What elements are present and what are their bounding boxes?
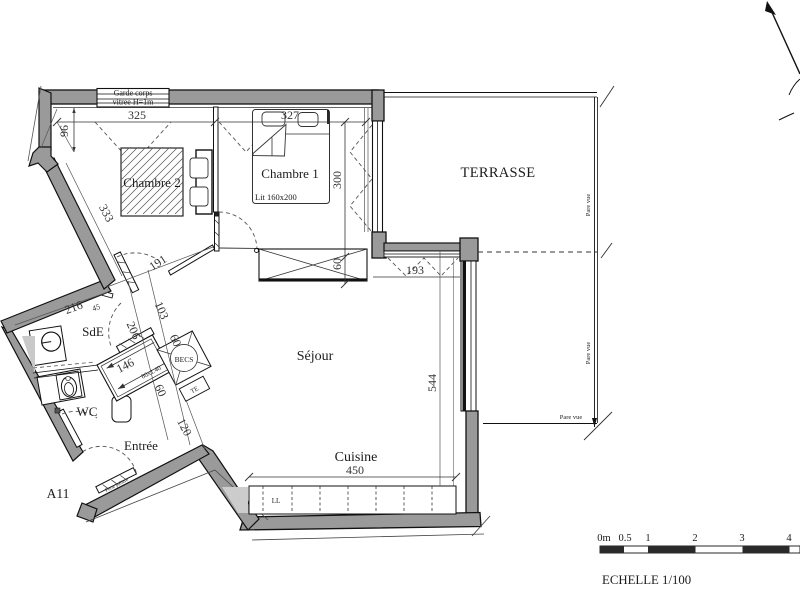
svg-text:3: 3 [739, 533, 744, 544]
svg-text:Pare vue: Pare vue [585, 342, 592, 365]
svg-text:vitree H=1m: vitree H=1m [113, 98, 155, 107]
svg-text:WC: WC [77, 404, 98, 419]
svg-text:450: 450 [346, 463, 364, 477]
svg-text:Chambre 2: Chambre 2 [123, 175, 180, 190]
svg-text:Garde corps: Garde corps [114, 89, 153, 98]
svg-text:193: 193 [406, 263, 424, 277]
svg-text:ECHELLE 1/100: ECHELLE 1/100 [602, 573, 691, 587]
svg-text:60: 60 [330, 258, 344, 270]
svg-text:SdE: SdE [82, 324, 104, 339]
svg-text:Chambre 1: Chambre 1 [261, 166, 318, 181]
svg-text:191: 191 [146, 252, 169, 274]
svg-text:0m: 0m [597, 533, 610, 544]
svg-text:0.5: 0.5 [618, 533, 631, 544]
svg-text:TERRASSE: TERRASSE [461, 165, 536, 181]
svg-text:45: 45 [91, 302, 102, 313]
svg-text:4: 4 [786, 533, 792, 544]
svg-text:60: 60 [152, 382, 170, 399]
svg-text:120: 120 [174, 416, 195, 438]
svg-text:96: 96 [57, 125, 71, 137]
svg-text:325: 325 [128, 108, 146, 122]
svg-text:Entrée: Entrée [124, 438, 158, 453]
svg-text:Pare vue: Pare vue [585, 194, 592, 217]
svg-text:Lit 160x200: Lit 160x200 [255, 192, 297, 202]
svg-text:1: 1 [645, 533, 650, 544]
svg-text:333: 333 [96, 202, 117, 224]
svg-text:Séjour: Séjour [297, 349, 334, 364]
svg-text:Pare vue: Pare vue [560, 414, 583, 421]
svg-text:300: 300 [330, 171, 344, 189]
svg-text:LL: LL [272, 497, 281, 505]
svg-text:103: 103 [152, 299, 172, 321]
svg-text:327: 327 [281, 108, 299, 122]
svg-text:BECS: BECS [175, 355, 194, 364]
svg-text:2: 2 [692, 533, 697, 544]
svg-text:544: 544 [425, 374, 439, 392]
svg-text:A11: A11 [47, 486, 70, 501]
